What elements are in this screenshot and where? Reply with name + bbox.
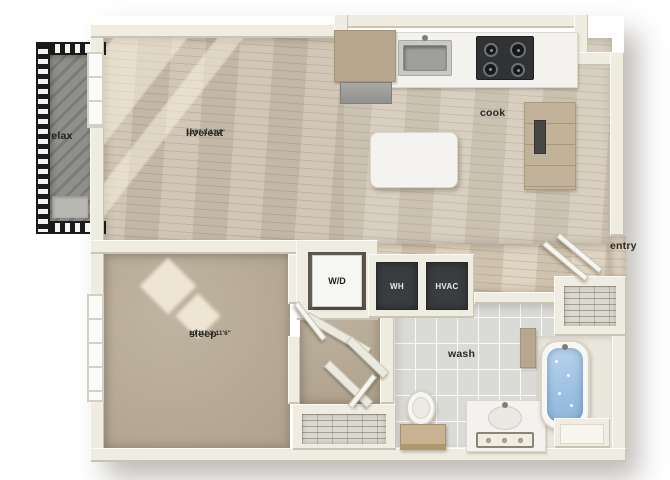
live-eat-dimensions: 12'9" X 13'2" <box>186 129 225 136</box>
water-heater-label: WH <box>390 282 404 291</box>
hvac-unit: HVAC <box>426 262 468 310</box>
washer-dryer-unit: W/D <box>312 255 362 307</box>
kitchen-island <box>370 132 458 188</box>
entry-name: entry <box>610 241 637 253</box>
kitchen-sink-basin <box>403 45 447 71</box>
vanity-faucet <box>502 402 508 408</box>
bath-bench-top <box>560 424 604 444</box>
wall-closet-bath <box>380 304 394 404</box>
wall-top-living <box>90 24 340 38</box>
bathtub-water <box>547 348 583 422</box>
burner <box>483 62 498 77</box>
toilet <box>406 390 436 426</box>
kitchen-tall-cabinet <box>524 102 576 190</box>
water-sparkle <box>567 374 570 377</box>
floor-sleep <box>104 254 290 448</box>
water-sparkle <box>570 404 573 407</box>
bedroom-closet-shelves <box>302 414 386 444</box>
water-sparkle <box>558 392 561 395</box>
cook-name: cook <box>480 108 505 120</box>
toiletry-bottle <box>518 438 523 443</box>
wall-living-bedroom <box>90 240 302 254</box>
kitchen-faucet <box>422 35 428 41</box>
relax-name: relax <box>47 131 73 143</box>
wall-top-kitchen <box>334 14 586 28</box>
wash-name: wash <box>448 349 475 361</box>
cooktop <box>476 36 534 80</box>
living-window <box>87 52 104 128</box>
balcony-threshold <box>52 196 88 218</box>
burner <box>510 42 526 58</box>
wall-bath-top <box>474 292 556 304</box>
bath-stool <box>400 424 446 450</box>
entry-closet-shelves <box>564 286 616 326</box>
burner <box>484 43 498 57</box>
wall-oven <box>534 120 546 154</box>
vanity-sink <box>488 406 522 430</box>
burner <box>511 63 525 77</box>
toiletry-bottle <box>486 438 491 443</box>
wall-right-lower <box>612 334 626 462</box>
window-muntins <box>89 54 102 126</box>
hvac-label: HVAC <box>435 282 458 291</box>
bathtub <box>540 340 590 430</box>
toiletry-bottle <box>502 438 507 443</box>
vanity-tray <box>476 432 534 448</box>
water-sparkle <box>555 360 558 363</box>
kitchen-cabinet-left <box>334 30 396 82</box>
dishwasher <box>340 82 392 104</box>
floor-plan: W/D WH HVAC <box>0 0 670 480</box>
wall-right-upper <box>610 52 624 236</box>
wall-bedroom-closet-b <box>288 336 300 404</box>
tub-faucet <box>562 344 568 350</box>
washer-dryer-label: W/D <box>328 276 346 286</box>
water-heater-unit: WH <box>376 262 418 310</box>
sleep-dimensions: 10'11" X 11'6" <box>189 330 231 337</box>
window-muntins <box>89 296 102 400</box>
bedroom-window <box>87 294 104 402</box>
toilet-seat <box>412 397 430 419</box>
tub-half-wall <box>520 328 536 368</box>
